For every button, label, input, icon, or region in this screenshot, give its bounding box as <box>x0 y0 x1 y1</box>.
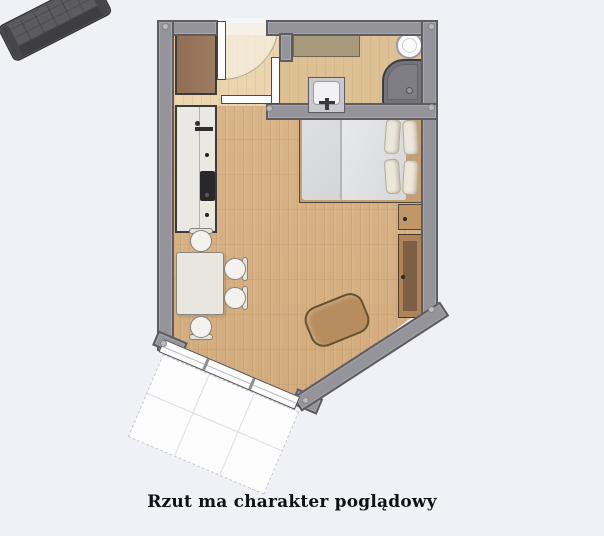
wall-joint-icon <box>160 340 167 347</box>
wall-joint-icon <box>428 104 435 111</box>
kitchen-counter-divider <box>199 107 200 231</box>
kitchen-knob <box>205 213 209 217</box>
dining-chair <box>188 314 214 340</box>
shower-tray <box>382 59 423 105</box>
wall-left <box>157 20 174 351</box>
wall-right <box>421 20 438 316</box>
interior-door-leaf <box>221 95 278 104</box>
pillow <box>384 119 401 155</box>
desk-sideboard <box>398 234 422 318</box>
pillow <box>402 160 419 196</box>
dining-chair <box>222 285 248 311</box>
wall-joint-icon <box>266 105 273 112</box>
faucet-icon <box>319 101 335 104</box>
sofa <box>0 0 113 63</box>
chair-seat <box>224 258 246 280</box>
kitchen-faucet-icon <box>195 121 200 126</box>
pillow <box>384 159 401 195</box>
entry-door-leaf <box>217 21 226 80</box>
chair-seat <box>190 230 212 252</box>
dining-table <box>176 252 224 315</box>
dining-chair <box>188 228 214 254</box>
balcony-grid-line <box>147 393 282 451</box>
nightstand <box>398 204 422 230</box>
knob-icon <box>401 275 405 279</box>
wardrobe <box>175 29 217 95</box>
cooktop-burner-icon <box>205 193 209 197</box>
kitchen-knob <box>205 153 209 157</box>
wall-bathroom-partition <box>279 33 293 62</box>
kitchen-faucet-icon <box>195 127 213 131</box>
wall-bathroom-bottom <box>266 103 438 120</box>
plan-disclaimer-caption: Rzut ma charakter poglądowy <box>132 492 452 512</box>
floor-plan: Rzut ma charakter poglądowy <box>0 0 604 536</box>
balcony-grid-line <box>219 394 254 475</box>
shower-pan <box>387 64 418 100</box>
wall-joint-icon <box>428 23 435 30</box>
toilet <box>396 32 423 59</box>
cooktop <box>200 171 215 201</box>
wall-joint-icon <box>428 306 435 313</box>
faucet-icon <box>325 98 329 110</box>
toilet-seat <box>402 38 417 53</box>
wall-joint-icon <box>302 397 309 404</box>
wall-joint-icon <box>162 23 169 30</box>
window-mullion <box>248 378 255 390</box>
kitchen-unit <box>175 105 217 233</box>
dining-chair <box>222 256 248 282</box>
window-mullion <box>202 358 209 370</box>
washbasin <box>308 77 345 113</box>
knob-icon <box>403 217 407 221</box>
balcony-grid-line <box>174 374 209 455</box>
chair-seat <box>190 316 212 338</box>
desk-top-panel <box>403 241 417 311</box>
pillow <box>402 120 419 156</box>
bathroom-door-leaf <box>271 57 280 104</box>
shower-drain-icon <box>406 87 413 94</box>
chair-seat <box>224 287 246 309</box>
